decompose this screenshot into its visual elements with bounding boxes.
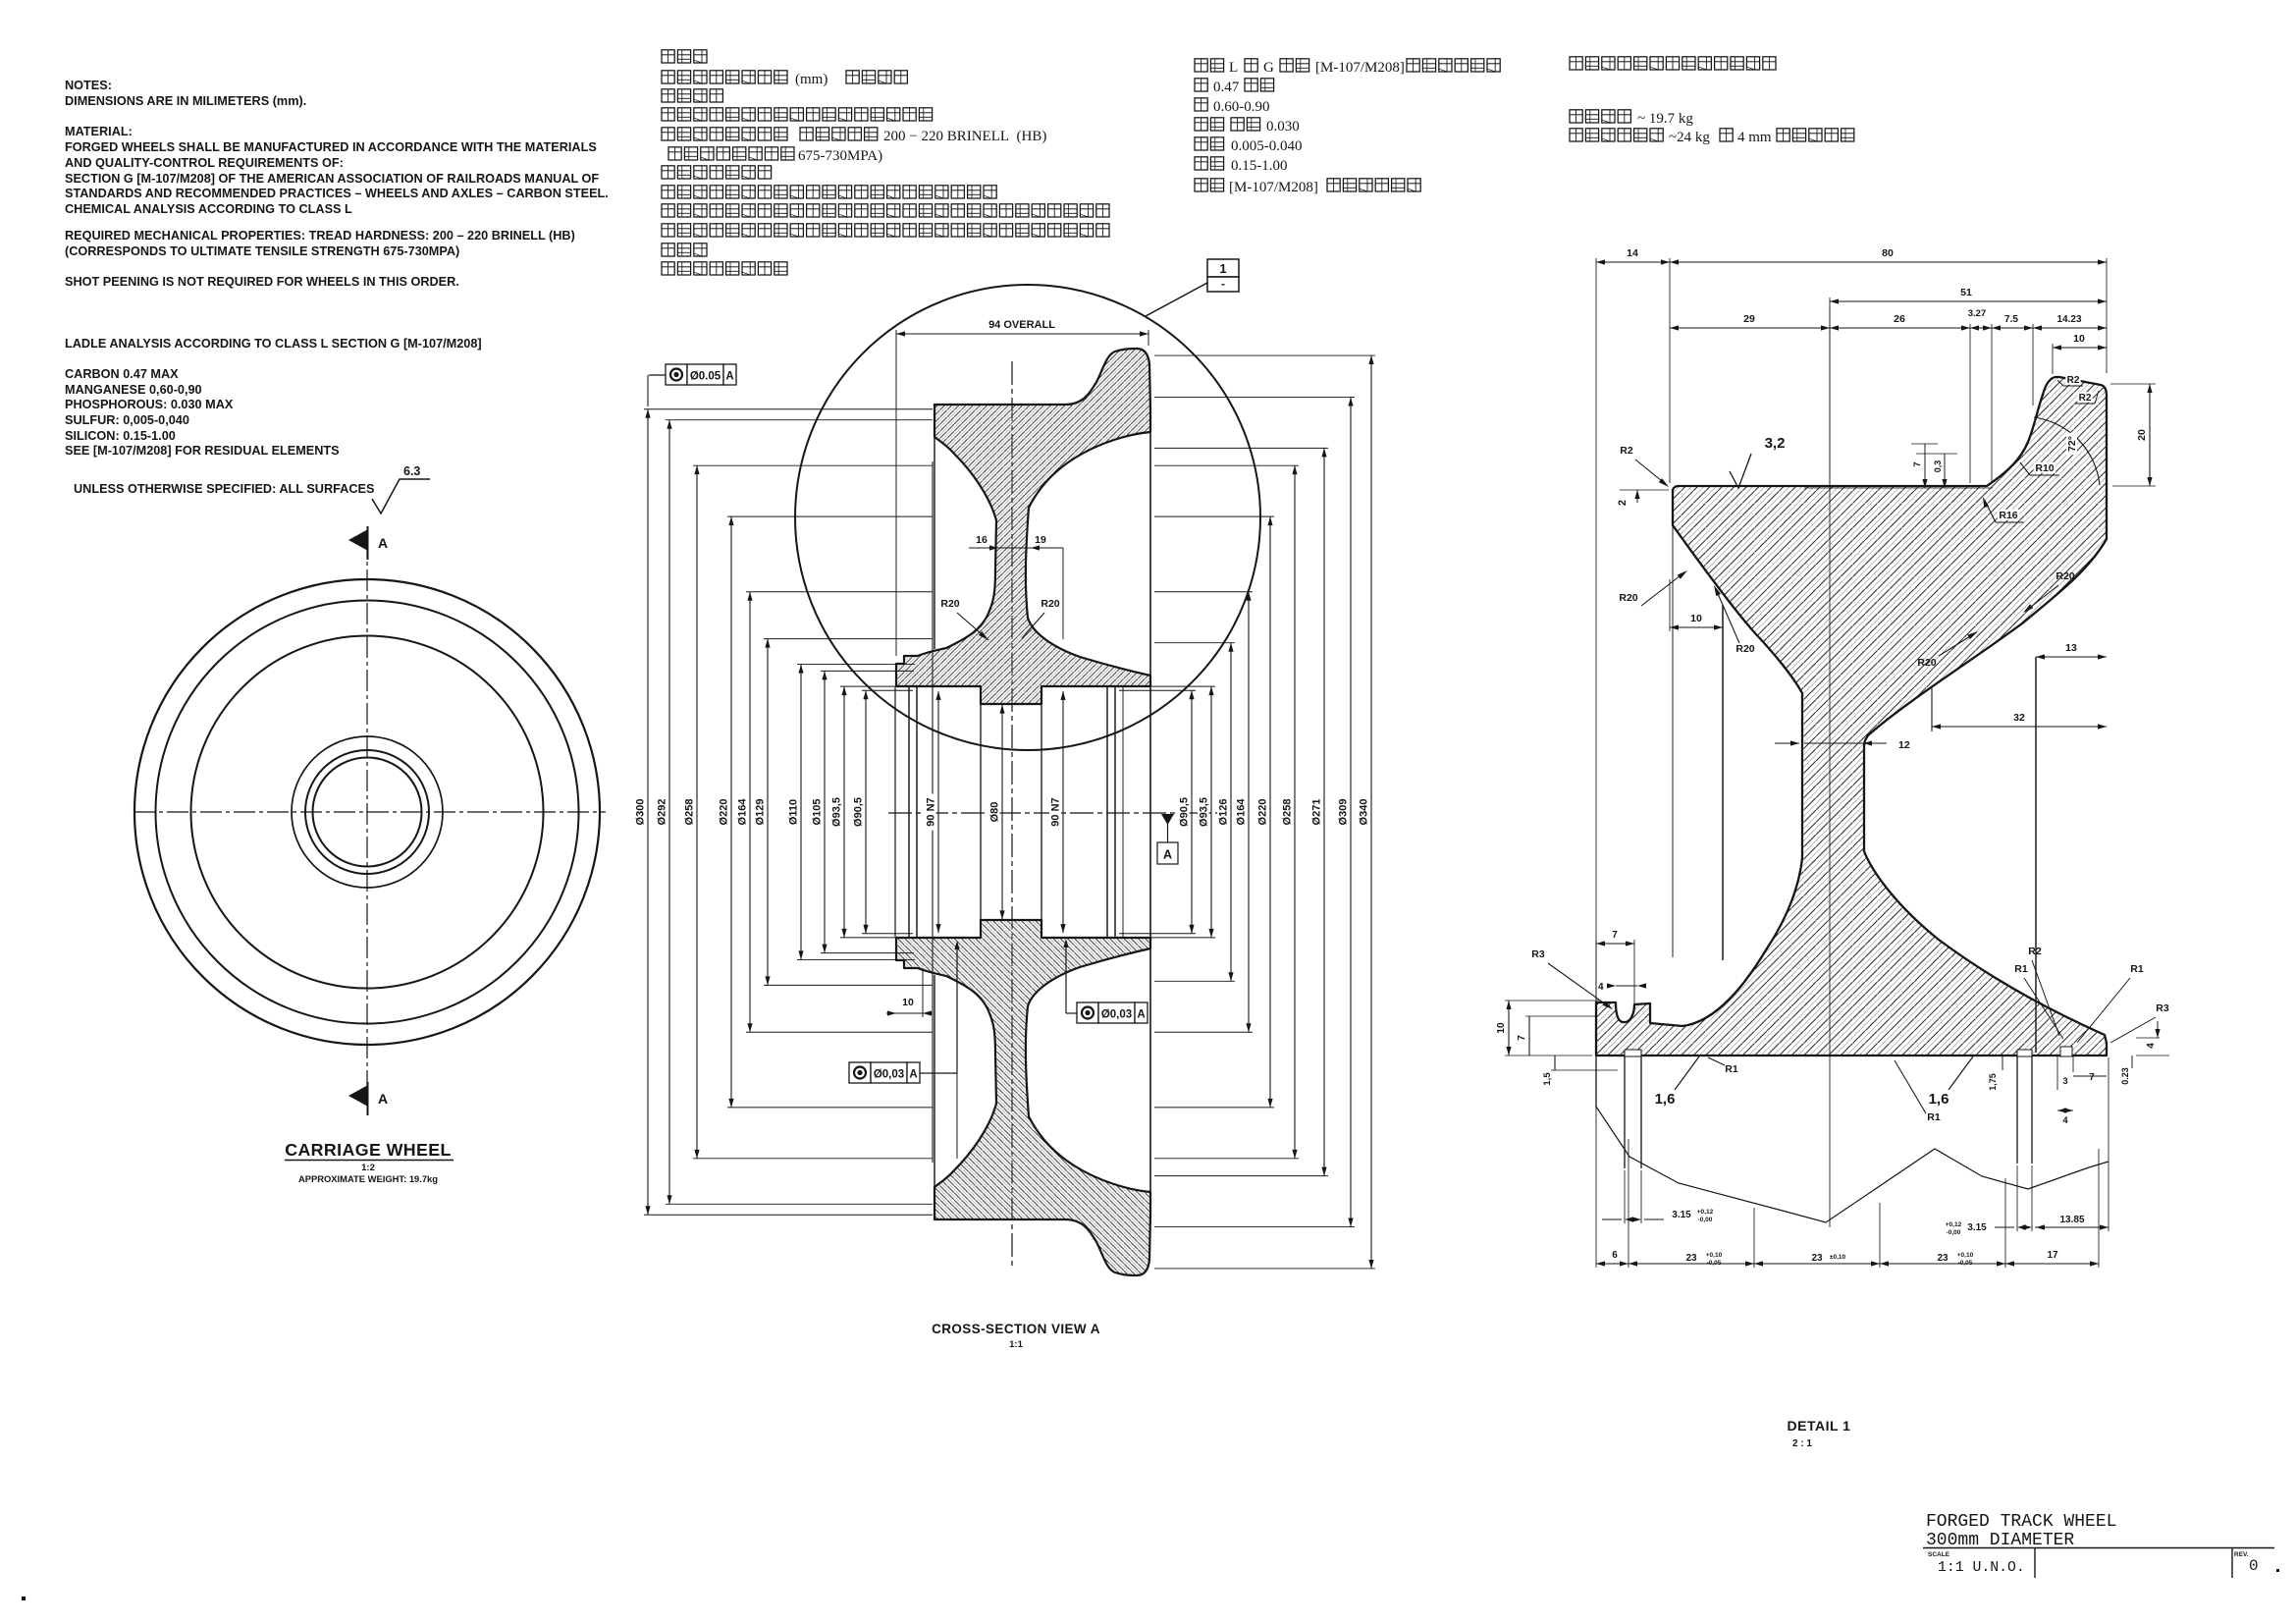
svg-text:Ø258: Ø258	[1282, 799, 1294, 826]
svg-text:3.27: 3.27	[1968, 308, 1987, 319]
svg-text:SEE [M-107/M208] FOR RESIDUAL: SEE [M-107/M208] FOR RESIDUAL ELEMENTS	[65, 444, 340, 458]
svg-text:±0,10: ±0,10	[1830, 1254, 1846, 1261]
svg-text:SULFUR: 0,005-0,040: SULFUR: 0,005-0,040	[65, 413, 189, 427]
svg-text:7: 7	[1912, 461, 1923, 466]
svg-text:13.85: 13.85	[2059, 1215, 2084, 1225]
svg-text:Ø340: Ø340	[1359, 799, 1370, 826]
svg-text:AND QUALITY-CONTROL REQUIREMEN: AND QUALITY-CONTROL REQUIREMENTS OF:	[65, 156, 344, 170]
svg-text:Ø220: Ø220	[719, 799, 730, 826]
svg-text:1:1: 1:1	[1009, 1339, 1023, 1350]
svg-text:+0,10: +0,10	[1957, 1252, 1974, 1259]
svg-text:17: 17	[2047, 1250, 2058, 1261]
svg-text:REQUIRED MECHANICAL PROPERTIES: REQUIRED MECHANICAL PROPERTIES: TREAD HA…	[65, 229, 575, 243]
svg-text:0: 0	[2249, 1557, 2259, 1575]
svg-text:Ø271: Ø271	[1311, 799, 1323, 826]
svg-text:0.030: 0.030	[1266, 119, 1300, 135]
svg-text:20: 20	[2136, 429, 2148, 441]
svg-text:~24 kg: ~24 kg	[1669, 130, 1710, 145]
svg-text:A: A	[378, 1091, 388, 1107]
svg-text:APPROXIMATE WEIGHT: 19.7kg: APPROXIMATE WEIGHT: 19.7kg	[298, 1173, 438, 1184]
svg-text:-: -	[1221, 277, 1225, 291]
svg-text:R10: R10	[2035, 462, 2054, 474]
svg-text:1:2: 1:2	[361, 1163, 375, 1173]
svg-text:Ø0,03: Ø0,03	[1101, 1009, 1132, 1021]
svg-text:+0,12: +0,12	[1946, 1221, 1962, 1228]
svg-text:REV.: REV.	[2234, 1551, 2249, 1558]
svg-text:UNLESS OTHERWISE SPECIFIED: AL: UNLESS OTHERWISE SPECIFIED: ALL SURFACES	[74, 482, 374, 496]
svg-text:19: 19	[1035, 534, 1046, 546]
svg-text:R20: R20	[2056, 570, 2074, 582]
svg-text:SILICON: 0.15-1.00: SILICON: 0.15-1.00	[65, 429, 176, 443]
svg-text:0.005-0.040: 0.005-0.040	[1231, 138, 1303, 154]
svg-text:16: 16	[976, 534, 988, 546]
svg-text:~ 19.7 kg: ~ 19.7 kg	[1637, 111, 1693, 127]
svg-text:Ø93,5: Ø93,5	[1199, 797, 1210, 827]
svg-text:80: 80	[1882, 247, 1894, 259]
svg-text:R2: R2	[2079, 393, 2092, 404]
svg-text:Ø164: Ø164	[737, 798, 749, 826]
svg-text:675-730MPA): 675-730MPA)	[798, 148, 882, 164]
svg-text:FORGED WHEELS SHALL BE MANUFAC: FORGED WHEELS SHALL BE MANUFACTURED IN A…	[65, 140, 597, 154]
svg-text:10: 10	[1496, 1022, 1507, 1034]
svg-text:R20: R20	[1619, 592, 1637, 604]
svg-text:PHOSPHOROUS: 0.030 MAX: PHOSPHOROUS: 0.030 MAX	[65, 398, 234, 411]
svg-text:Ø126: Ø126	[1218, 799, 1230, 826]
svg-text:0.47: 0.47	[1213, 80, 1240, 95]
svg-text:R1: R1	[1927, 1111, 1941, 1123]
svg-text:Ø292: Ø292	[657, 799, 668, 826]
svg-text:R1: R1	[2014, 963, 2028, 975]
svg-text:26: 26	[1894, 313, 1905, 325]
svg-text:R3: R3	[2156, 1002, 2169, 1014]
svg-text:3.15: 3.15	[1672, 1210, 1691, 1220]
svg-text:Ø164: Ø164	[1236, 798, 1248, 826]
svg-text:-0,00: -0,00	[1947, 1229, 1961, 1236]
svg-text:-0,05: -0,05	[1707, 1260, 1722, 1267]
svg-text:2: 2	[1617, 500, 1629, 506]
svg-text:SHOT PEENING IS NOT REQUIRED F: SHOT PEENING IS NOT REQUIRED FOR WHEELS …	[65, 275, 459, 289]
svg-text:(mm): (mm)	[795, 72, 828, 87]
svg-text:12: 12	[1898, 739, 1910, 751]
svg-text:A: A	[1137, 1009, 1145, 1021]
svg-text:L: L	[1229, 60, 1238, 76]
svg-text:23: 23	[1811, 1253, 1823, 1264]
svg-text:SCALE: SCALE	[1928, 1551, 1950, 1558]
svg-text:6: 6	[1612, 1250, 1618, 1261]
svg-text:1,6: 1,6	[1655, 1091, 1676, 1108]
svg-text:Ø300: Ø300	[635, 799, 647, 826]
svg-text:R20: R20	[1917, 657, 1936, 669]
svg-text:NOTES:: NOTES:	[65, 79, 112, 92]
svg-text:7: 7	[1612, 930, 1618, 941]
svg-text:7: 7	[1517, 1035, 1527, 1041]
svg-text:4: 4	[2146, 1043, 2157, 1049]
svg-text:Ø80: Ø80	[989, 802, 1001, 823]
svg-text:10: 10	[2073, 333, 2085, 345]
svg-text:3,2: 3,2	[1765, 435, 1786, 452]
svg-text:R16: R16	[1999, 510, 2017, 521]
svg-text:+0,10: +0,10	[1706, 1252, 1723, 1259]
svg-text:FORGED TRACK WHEEL: FORGED TRACK WHEEL	[1926, 1512, 2116, 1532]
svg-text:3: 3	[2062, 1076, 2067, 1087]
svg-text:32: 32	[2013, 712, 2025, 724]
svg-text:13: 13	[2065, 642, 2077, 654]
svg-text:A: A	[909, 1069, 917, 1081]
svg-text:Ø90,5: Ø90,5	[853, 797, 865, 827]
svg-text:MATERIAL:: MATERIAL:	[65, 125, 133, 138]
svg-text:Ø0.05: Ø0.05	[690, 371, 721, 383]
svg-text:94 OVERALL: 94 OVERALL	[988, 319, 1055, 331]
svg-text:1,5: 1,5	[1542, 1072, 1553, 1086]
svg-text:4: 4	[2062, 1115, 2068, 1126]
svg-text:A: A	[725, 371, 733, 383]
svg-text:MANGANESE 0,60-0,90: MANGANESE 0,60-0,90	[65, 383, 202, 397]
svg-text:6.3: 6.3	[403, 464, 420, 478]
svg-text:R20: R20	[1735, 643, 1754, 655]
svg-text:7.5: 7.5	[2004, 314, 2018, 325]
svg-text:23: 23	[1685, 1253, 1697, 1264]
svg-text:LADLE ANALYSIS ACCORDING TO CL: LADLE ANALYSIS ACCORDING TO CLASS L SECT…	[65, 337, 482, 351]
svg-text:R3: R3	[1531, 948, 1545, 960]
svg-text:0,3: 0,3	[1933, 460, 1943, 473]
svg-text:0.60-0.90: 0.60-0.90	[1213, 99, 1270, 115]
svg-text:-0,00: -0,00	[1698, 1217, 1713, 1223]
svg-text:14: 14	[1627, 247, 1638, 259]
svg-text:10: 10	[902, 997, 914, 1008]
svg-text:DIMENSIONS ARE IN MILIMETERS (: DIMENSIONS ARE IN MILIMETERS (mm).	[65, 94, 306, 108]
svg-text:[M-107/M208]: [M-107/M208]	[1229, 180, 1318, 195]
svg-text:Ø90,5: Ø90,5	[1179, 797, 1191, 827]
svg-text:14.23: 14.23	[2056, 314, 2081, 325]
svg-text:200 − 220 BRINELL (HB): 200 − 220 BRINELL (HB)	[883, 129, 1046, 144]
svg-text:CROSS-SECTION VIEW A: CROSS-SECTION VIEW A	[932, 1322, 1100, 1336]
svg-text:Ø258: Ø258	[684, 799, 696, 826]
svg-text:A: A	[378, 535, 388, 551]
svg-text:51: 51	[1960, 287, 1972, 298]
svg-text:R1: R1	[2130, 963, 2144, 975]
svg-text:3.15: 3.15	[1967, 1222, 1987, 1233]
svg-text:R20: R20	[940, 598, 959, 610]
svg-text:Ø220: Ø220	[1257, 799, 1269, 826]
svg-text:G: G	[1263, 60, 1274, 76]
svg-text:Ø93,5: Ø93,5	[831, 797, 843, 827]
svg-text:29: 29	[1743, 313, 1755, 325]
svg-text:CHEMICAL ANALYSIS ACCORDING TO: CHEMICAL ANALYSIS ACCORDING TO CLASS L	[65, 202, 352, 216]
svg-text:STANDARDS AND RECOMMENDED PRAC: STANDARDS AND RECOMMENDED PRACTICES – WH…	[65, 187, 609, 200]
svg-text:Ø0,03: Ø0,03	[874, 1069, 904, 1081]
svg-text:4 mm: 4 mm	[1737, 130, 1772, 145]
svg-text:(CORRESPONDS TO ULTIMATE TENSI: (CORRESPONDS TO ULTIMATE TENSILE STRENGT…	[65, 244, 459, 258]
svg-text:1:1 U.N.O.: 1:1 U.N.O.	[1938, 1560, 2025, 1576]
svg-text:1: 1	[1219, 261, 1226, 276]
svg-text:23: 23	[1937, 1253, 1949, 1264]
svg-text:0.23: 0.23	[2120, 1067, 2130, 1085]
svg-text:CARRIAGE WHEEL: CARRIAGE WHEEL	[285, 1140, 452, 1160]
svg-text:1,6: 1,6	[1929, 1091, 1949, 1108]
svg-text:10: 10	[1690, 613, 1702, 624]
svg-text:1,75: 1,75	[1988, 1073, 1998, 1091]
svg-text:4: 4	[1598, 982, 1604, 993]
svg-text:7: 7	[2089, 1072, 2095, 1083]
svg-text:90 N7: 90 N7	[926, 797, 937, 826]
svg-text:DETAIL 1: DETAIL 1	[1788, 1418, 1851, 1434]
svg-text:2 : 1: 2 : 1	[1792, 1438, 1812, 1449]
svg-text:Ø105: Ø105	[812, 799, 824, 826]
svg-text:[M-107/M208]: [M-107/M208]	[1315, 60, 1405, 76]
svg-text:0.15-1.00: 0.15-1.00	[1231, 158, 1288, 174]
svg-text:Ø110: Ø110	[788, 799, 800, 825]
svg-text:R2: R2	[2028, 946, 2042, 957]
svg-text:R2: R2	[2067, 375, 2080, 386]
svg-text:72°: 72°	[2066, 436, 2078, 452]
svg-text:CARBON 0.47 MAX: CARBON 0.47 MAX	[65, 367, 179, 381]
svg-text:R1: R1	[1725, 1063, 1738, 1075]
svg-text:+0,12: +0,12	[1697, 1209, 1714, 1216]
svg-text:-0,05: -0,05	[1958, 1260, 1973, 1267]
svg-text:Ø309: Ø309	[1338, 799, 1350, 826]
svg-text:R2: R2	[1620, 445, 1633, 457]
svg-text:R20: R20	[1041, 598, 1059, 610]
svg-text:Ø129: Ø129	[755, 799, 767, 826]
svg-text:A: A	[1163, 848, 1172, 862]
svg-text:90 N7: 90 N7	[1050, 797, 1062, 826]
svg-text:SECTION G [M-107/M208] OF THE: SECTION G [M-107/M208] OF THE AMERICAN A…	[65, 172, 599, 186]
